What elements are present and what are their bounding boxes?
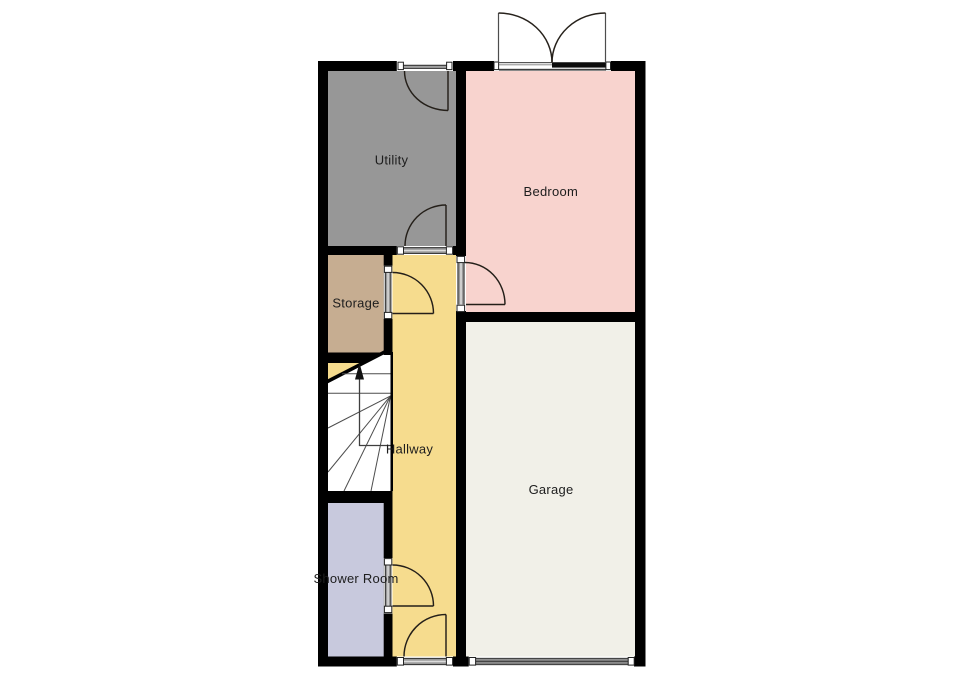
svg-text:Utility: Utility — [375, 152, 409, 167]
svg-text:Shower Room: Shower Room — [313, 571, 398, 586]
svg-text:Garage: Garage — [529, 482, 574, 497]
svg-text:Bedroom: Bedroom — [524, 184, 579, 199]
svg-text:Hallway: Hallway — [386, 442, 434, 457]
svg-text:Storage: Storage — [332, 296, 379, 311]
